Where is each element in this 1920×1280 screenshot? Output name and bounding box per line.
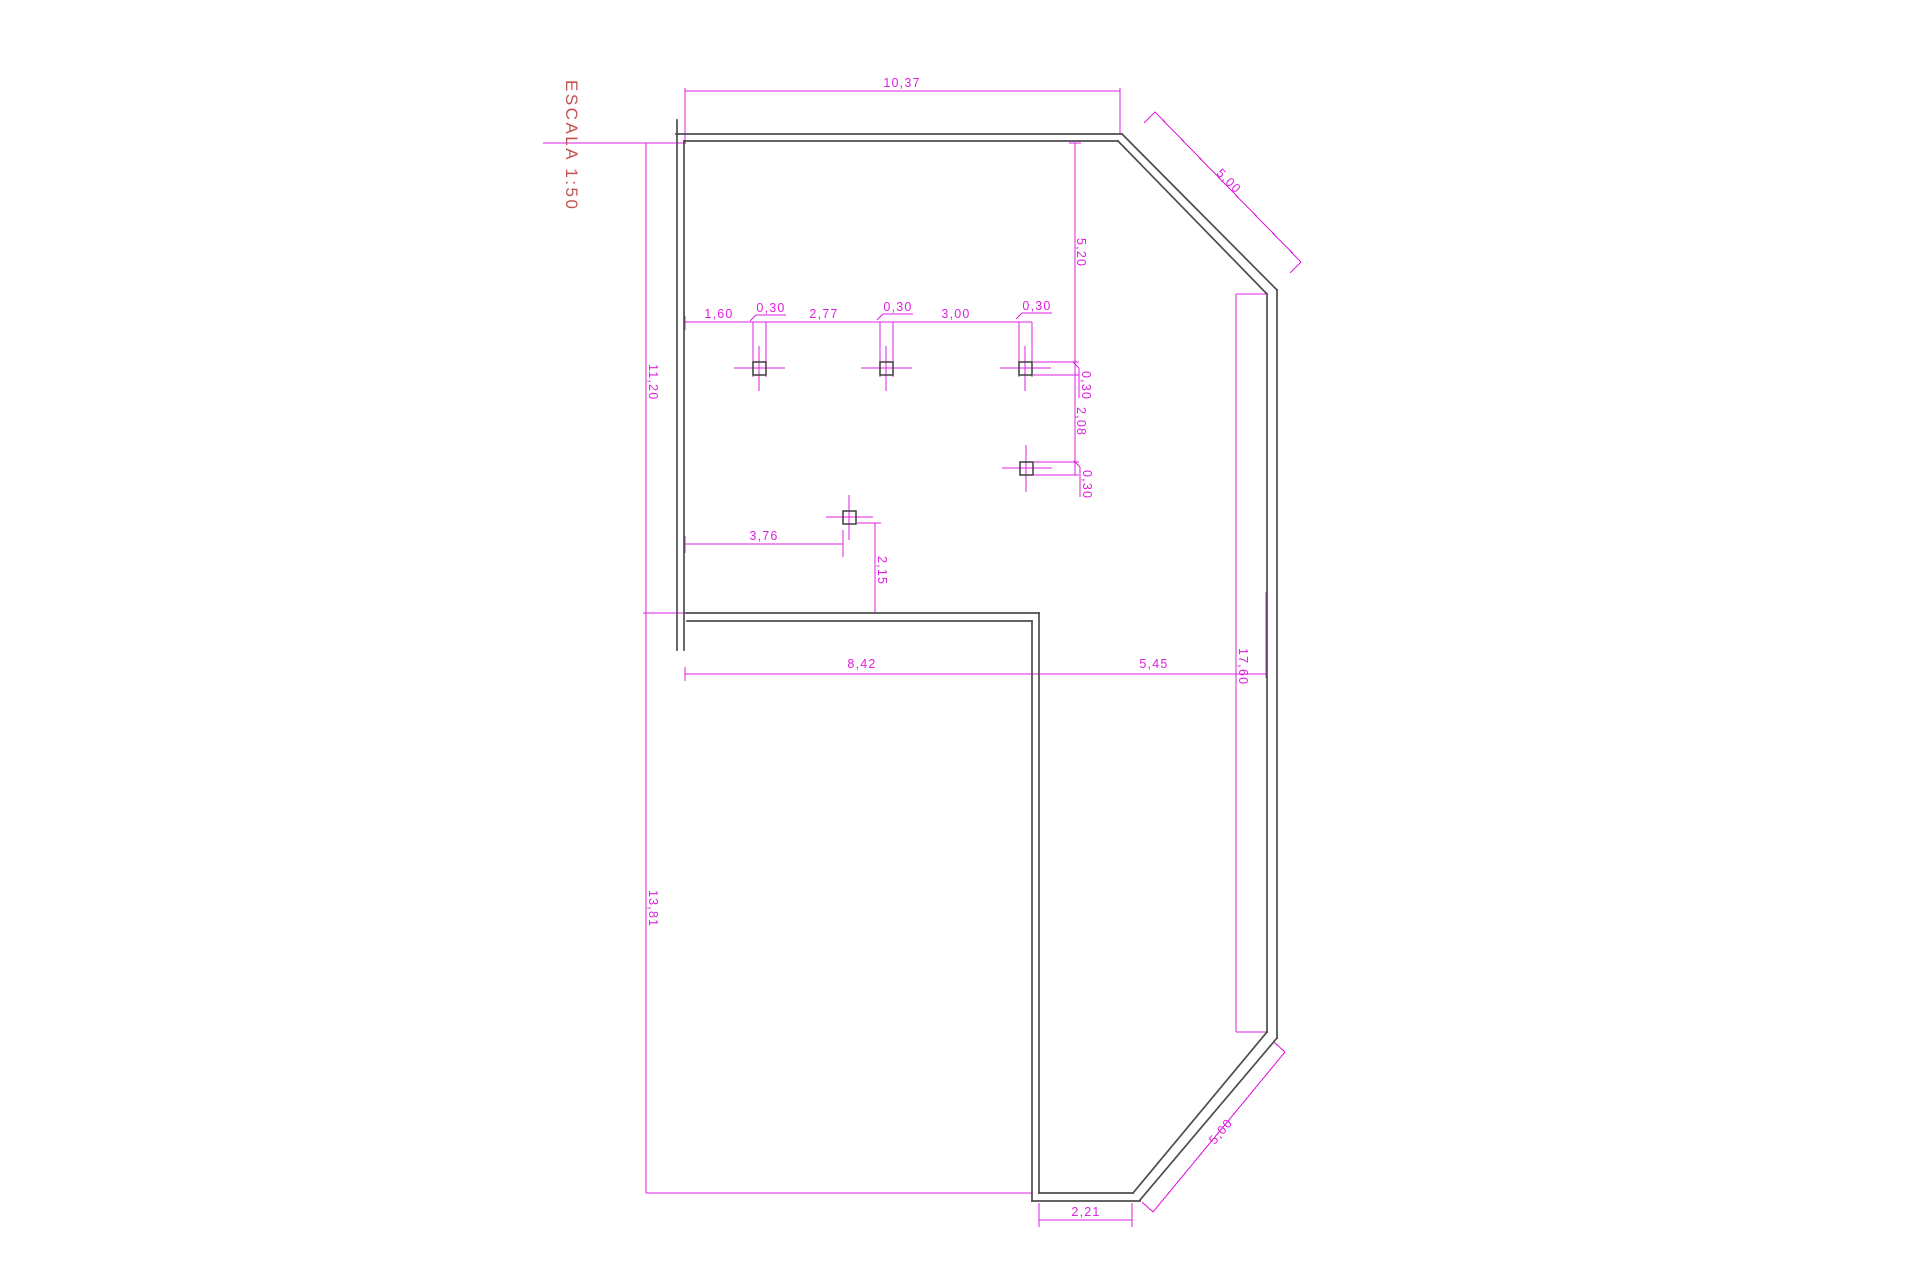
scale-label: ESCALA 1:50 xyxy=(562,80,581,211)
dimension-label: 5,20 xyxy=(1074,238,1088,267)
dimension-label: 3,00 xyxy=(941,307,970,321)
dimension-label: 0,30 xyxy=(1022,299,1051,313)
dimension-line xyxy=(1142,1202,1153,1212)
dimension-label: 0,30 xyxy=(883,300,912,314)
dimension-line xyxy=(1144,112,1155,123)
cad-sheet: 10,371,600,302,770,303,000,305,200,302,0… xyxy=(0,0,1920,1280)
dimension-label: 5,00 xyxy=(1206,1116,1235,1147)
wall-line xyxy=(1133,1032,1267,1193)
dimension-label: 13,81 xyxy=(646,890,660,927)
dimension-label: 0,30 xyxy=(1080,470,1094,499)
dimension-label: 3,76 xyxy=(749,529,778,543)
dimension-label: 1,60 xyxy=(704,307,733,321)
dimension-label: 5,45 xyxy=(1139,657,1168,671)
dimension-label: 8,42 xyxy=(847,657,876,671)
wall-line xyxy=(1140,1038,1277,1200)
dimension-label: 2,77 xyxy=(809,307,838,321)
dimension-label: 10,37 xyxy=(883,76,920,90)
dimension-line xyxy=(877,314,883,320)
dimension-label: 17,60 xyxy=(1236,648,1250,685)
dimension-label: 2,08 xyxy=(1074,407,1088,436)
floor-plan-canvas: 10,371,600,302,770,303,000,305,200,302,0… xyxy=(0,0,1920,1280)
dimension-label: 2,15 xyxy=(875,556,889,585)
dimension-label: 0,30 xyxy=(1079,371,1093,400)
dimension-line xyxy=(1290,262,1301,273)
dimension-line xyxy=(1073,362,1079,368)
dimension-label: 5,00 xyxy=(1214,166,1245,197)
dimension-line xyxy=(750,315,756,321)
wall-line xyxy=(1118,141,1267,294)
dimension-label: 2,21 xyxy=(1071,1205,1100,1219)
dimension-line xyxy=(1274,1042,1285,1052)
dimension-label: 0,30 xyxy=(756,301,785,315)
dimension-label: 11,20 xyxy=(646,364,660,400)
dimension-line xyxy=(1016,313,1022,319)
